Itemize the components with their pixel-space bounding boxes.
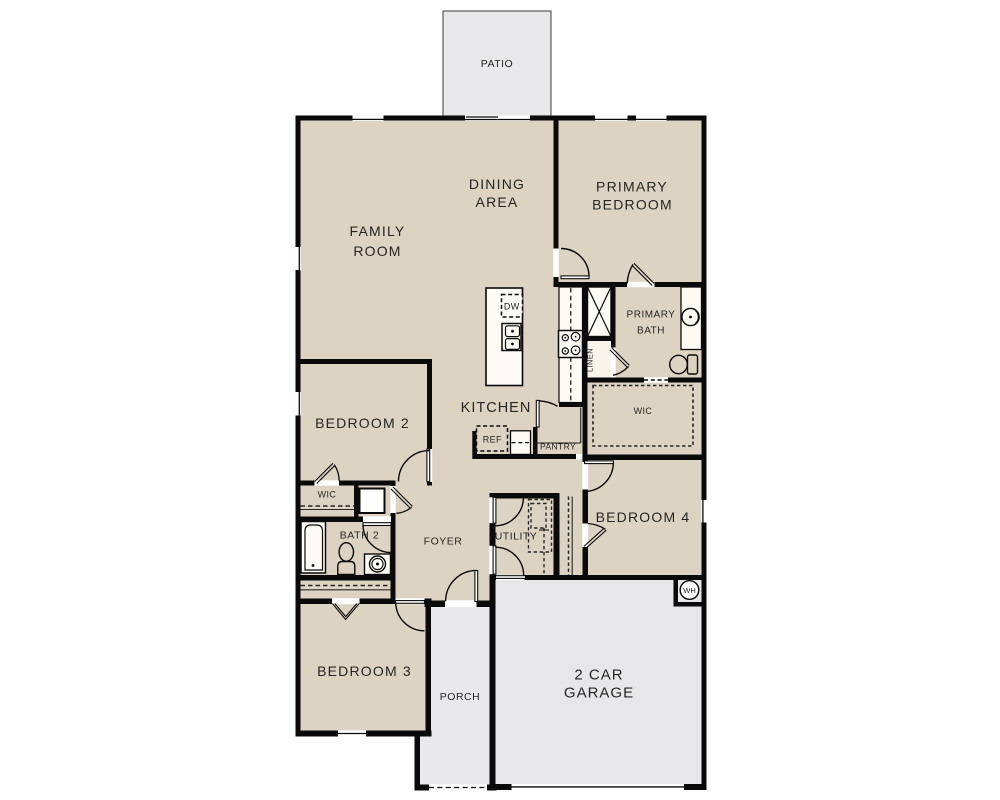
- svg-text:BATH: BATH: [637, 326, 665, 337]
- svg-text:PRIMARY: PRIMARY: [596, 179, 668, 195]
- svg-text:UTILITY: UTILITY: [495, 531, 538, 543]
- svg-text:PRIMARY: PRIMARY: [627, 310, 676, 321]
- svg-text:BEDROOM 3: BEDROOM 3: [317, 663, 412, 679]
- svg-text:BATH 2: BATH 2: [340, 530, 380, 542]
- svg-text:WH: WH: [683, 586, 696, 595]
- svg-text:FAMILY: FAMILY: [350, 223, 406, 239]
- svg-text:AREA: AREA: [476, 194, 519, 210]
- svg-text:DW: DW: [504, 302, 520, 312]
- svg-text:WIC: WIC: [318, 490, 337, 500]
- svg-text:WIC: WIC: [634, 406, 653, 416]
- svg-text:FOYER: FOYER: [424, 536, 463, 548]
- svg-text:GARAGE: GARAGE: [564, 685, 634, 702]
- svg-text:BEDROOM 2: BEDROOM 2: [315, 415, 410, 431]
- svg-text:2 CAR: 2 CAR: [574, 667, 623, 684]
- svg-text:DINING: DINING: [469, 176, 525, 192]
- svg-text:ROOM: ROOM: [353, 243, 401, 259]
- svg-text:BEDROOM 4: BEDROOM 4: [596, 509, 691, 525]
- svg-text:PANTRY: PANTRY: [540, 442, 576, 452]
- svg-text:LINEN: LINEN: [586, 348, 595, 372]
- svg-text:REF: REF: [483, 435, 502, 445]
- svg-text:BEDROOM: BEDROOM: [592, 197, 673, 213]
- svg-text:PATIO: PATIO: [481, 58, 513, 70]
- svg-text:PORCH: PORCH: [440, 691, 480, 703]
- svg-text:KITCHEN: KITCHEN: [461, 400, 532, 416]
